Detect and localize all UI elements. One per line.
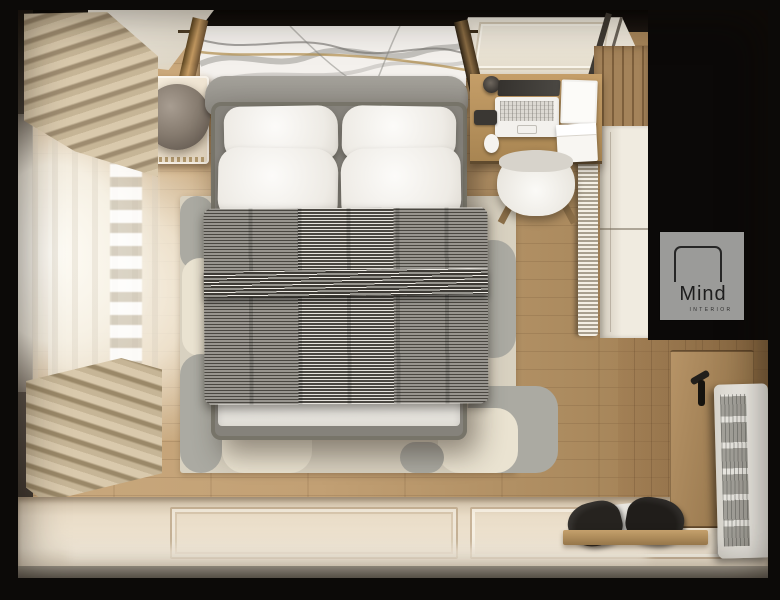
desk-chair [497, 150, 575, 216]
bedroom-room [18, 10, 768, 578]
door-handle [698, 380, 705, 406]
knit-throw [578, 156, 598, 336]
radiator [714, 383, 768, 558]
logo-subtitle: INTERIOR [684, 307, 738, 313]
smartphone [474, 110, 497, 125]
computer-mouse [484, 134, 499, 153]
wardrobe-panel-line [610, 132, 611, 332]
rug-pattern-shape [400, 442, 444, 473]
radiator-grille [720, 394, 750, 547]
duvet-fold [204, 268, 488, 297]
laptop-keyboard-deck [495, 97, 559, 137]
wall-light-streak [68, 547, 648, 563]
laptop-trackpad [517, 125, 537, 134]
baseboard [18, 566, 768, 578]
chair-backrest [499, 150, 573, 172]
wooden-bench [563, 530, 708, 545]
brand-logo: Mind INTERIOR [660, 232, 744, 320]
canvas-border [0, 0, 780, 10]
render-canvas: Mind INTERIOR [0, 0, 780, 600]
logo-title: Mind [668, 282, 738, 306]
wardrobe [600, 126, 648, 338]
paper-stack [560, 79, 598, 124]
paper-fold [556, 123, 597, 137]
laptop-screen [497, 80, 560, 96]
laptop-keys [500, 101, 554, 121]
wardrobe-seam [600, 228, 648, 230]
striped-duvet [203, 207, 488, 404]
ceiling-panel-frame [473, 22, 610, 70]
